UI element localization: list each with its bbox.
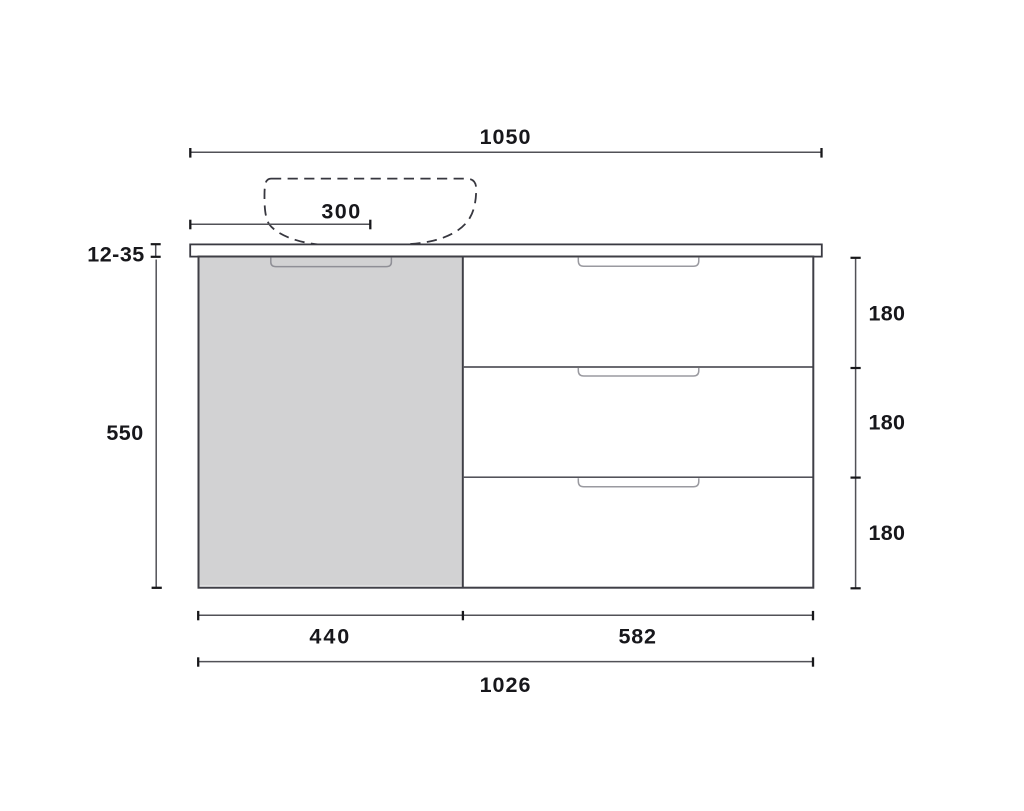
svg-text:180: 180 (869, 521, 906, 545)
svg-text:300: 300 (321, 199, 361, 223)
svg-text:440: 440 (309, 625, 351, 649)
svg-text:582: 582 (618, 625, 656, 649)
svg-text:1026: 1026 (480, 673, 532, 697)
svg-text:180: 180 (869, 410, 906, 434)
svg-text:550: 550 (106, 421, 143, 445)
svg-text:1050: 1050 (480, 125, 532, 149)
svg-text:180: 180 (869, 301, 906, 325)
svg-text:12-35: 12-35 (87, 242, 145, 266)
